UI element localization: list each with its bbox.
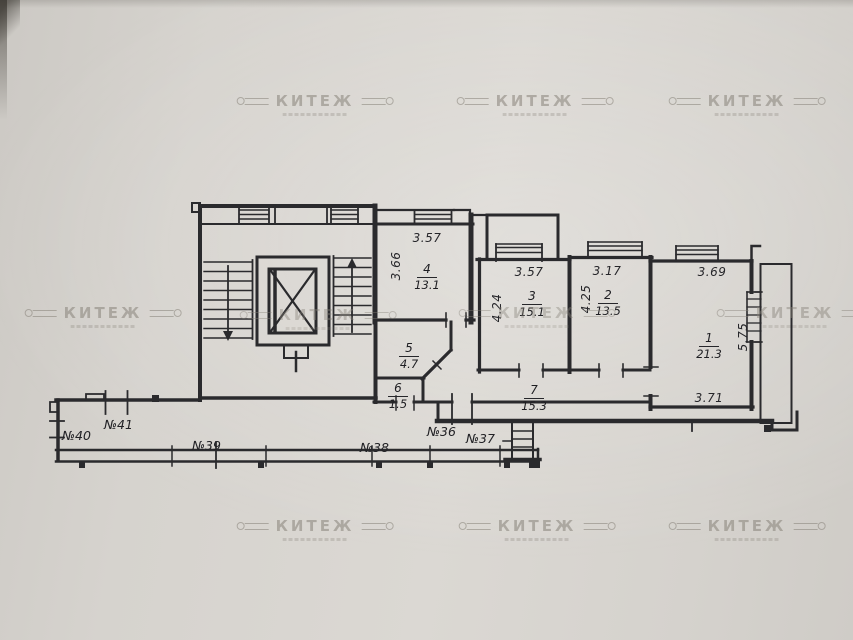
elevator-shaft [257,257,329,371]
floor-plan-drawing [0,0,853,640]
room-3-height-dim: 4.24 [490,288,504,328]
stairs-left-flight [204,260,253,341]
unit-label-40: №40 [62,428,91,443]
room-7-label: 7 15.3 [516,379,552,413]
room-4-width-dim: 3.57 [407,231,447,245]
room-6-label: 6 1.5 [380,377,416,411]
room-3-width-dim: 3.57 [509,265,549,279]
unit-label-38: №38 [360,440,389,455]
room-4-height-dim: 3.66 [389,246,403,286]
staircase-block [192,203,376,400]
unit-label-37: №37 [466,431,495,446]
room-4-label: 4 13.1 [409,258,445,292]
room-5-label: 5 4.7 [391,337,427,371]
stairs-right-flight [334,256,372,336]
wall-post [152,395,159,402]
room-2-label: 2 13.5 [590,284,626,318]
stairs-down-arrowhead [223,331,233,341]
bay-window-above-room-3 [487,215,558,261]
south-outer-wall [437,412,797,432]
right-balcony [755,264,792,423]
room-1-label: 1 21.3 [691,327,727,361]
stairs-up-arrowhead [347,258,357,268]
room-1-height-dim: 5.75 [736,317,750,357]
unit-label-39: №39 [192,438,221,453]
scanned-floor-plan-photo: 3.57 3.66 3.57 4.24 3.17 4.25 3.69 5.75 … [0,0,853,640]
room-1-bottom-dim: 3.71 [689,391,729,405]
unit-label-41: №41 [104,417,133,432]
room-2-width-dim: 3.17 [587,264,627,278]
wall-foot [764,425,771,432]
floor-plan: 3.57 3.66 3.57 4.24 3.17 4.25 3.69 5.75 … [0,0,853,640]
unit-label-36: №36 [427,424,456,439]
room-1-width-dim: 3.69 [692,265,732,279]
room-3-label: 3 15.1 [514,285,550,319]
